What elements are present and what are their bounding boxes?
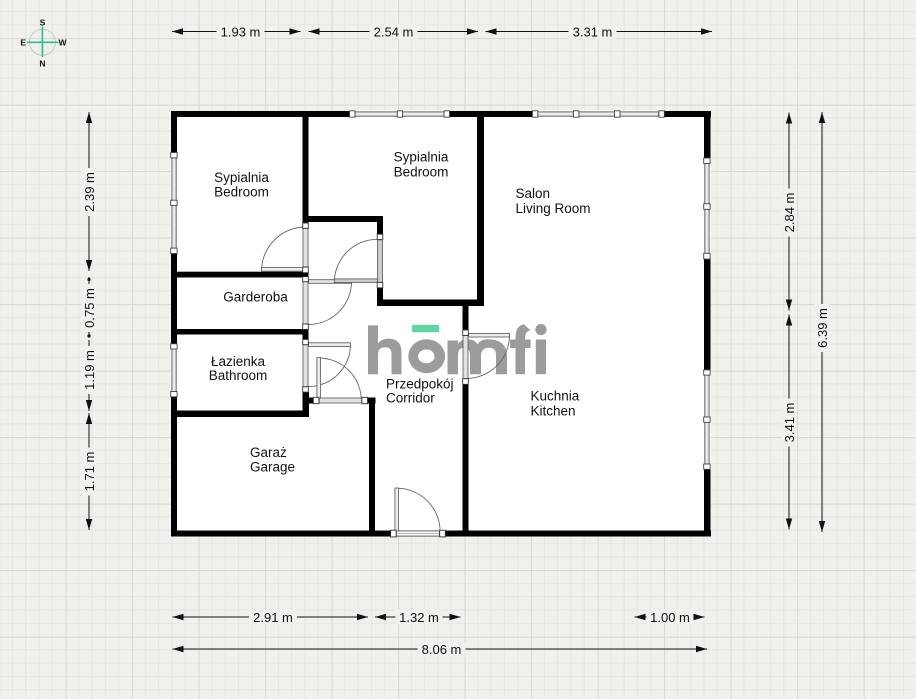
svg-text:E: E [20,38,26,48]
svg-text:8.06 m: 8.06 m [422,642,462,657]
svg-text:W: W [58,38,67,48]
svg-text:Kuchnia: Kuchnia [531,389,580,404]
svg-text:Salon: Salon [516,186,551,201]
svg-text:Bathroom: Bathroom [209,368,268,383]
svg-text:Sypialnia: Sypialnia [394,150,449,165]
svg-text:Bedroom: Bedroom [214,185,269,200]
svg-text:6.39 m: 6.39 m [815,308,830,348]
svg-text:2.91 m: 2.91 m [253,610,293,625]
svg-text:Living Room: Living Room [516,201,591,216]
svg-text:1.00 m: 1.00 m [650,610,690,625]
svg-text:Łazienka: Łazienka [211,354,266,369]
svg-text:0.75 m: 0.75 m [82,288,97,328]
svg-text:Garage: Garage [250,460,295,475]
svg-text:Corridor: Corridor [386,391,435,406]
svg-text:2.39 m: 2.39 m [82,172,97,212]
svg-text:3.31 m: 3.31 m [573,25,613,40]
svg-text:3.41 m: 3.41 m [782,403,797,443]
svg-text:Kitchen: Kitchen [531,404,576,419]
svg-text:1.19 m: 1.19 m [82,350,97,390]
svg-text:Bedroom: Bedroom [394,165,449,180]
svg-text:2.84 m: 2.84 m [782,193,797,233]
svg-text:S: S [40,18,46,28]
svg-text:2.54 m: 2.54 m [374,25,414,40]
svg-text:1.71 m: 1.71 m [82,452,97,492]
svg-text:Przedpokój: Przedpokój [386,377,454,392]
svg-text:Garderoba: Garderoba [223,290,288,305]
svg-text:Garaż: Garaż [250,445,287,460]
svg-text:Sypialnia: Sypialnia [214,170,269,185]
svg-text:N: N [39,59,45,69]
svg-text:1.93 m: 1.93 m [221,25,261,40]
svg-text:1.32 m: 1.32 m [399,610,439,625]
